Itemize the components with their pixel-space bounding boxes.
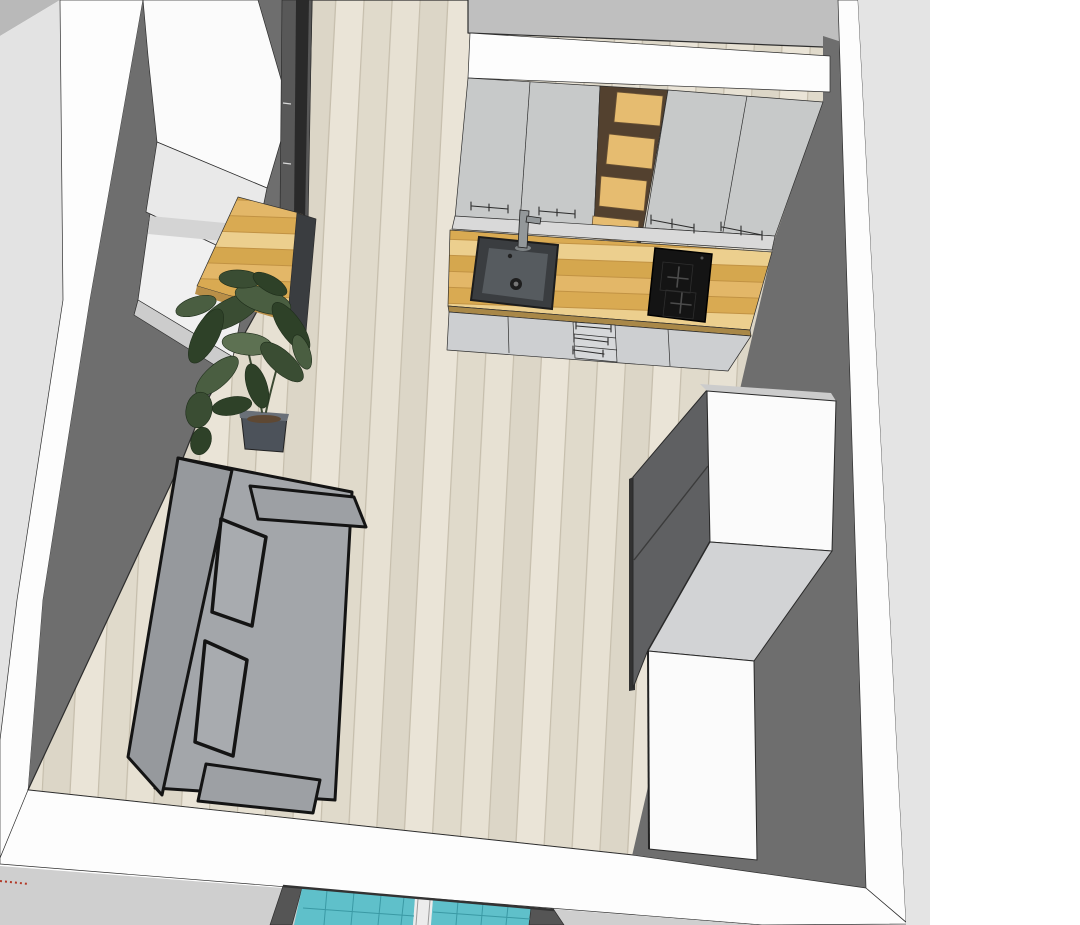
white-box-lower-edge xyxy=(648,651,649,849)
plant-soil xyxy=(247,415,281,423)
room-render[interactable] xyxy=(0,0,1080,925)
white-box-lower xyxy=(648,651,757,860)
upper-cabinets-left xyxy=(455,78,600,228)
sink-basin xyxy=(482,248,548,301)
cooktop-control-dot xyxy=(701,257,704,260)
wood-shelf-3 xyxy=(599,176,647,211)
wood-shelf-1 xyxy=(614,92,663,126)
3d-viewport[interactable] xyxy=(0,0,1080,925)
white-box-upper xyxy=(707,391,836,551)
sink-tap-hole xyxy=(508,254,512,258)
wood-shelf-2 xyxy=(606,134,655,169)
sink-drain-cap xyxy=(514,282,519,287)
